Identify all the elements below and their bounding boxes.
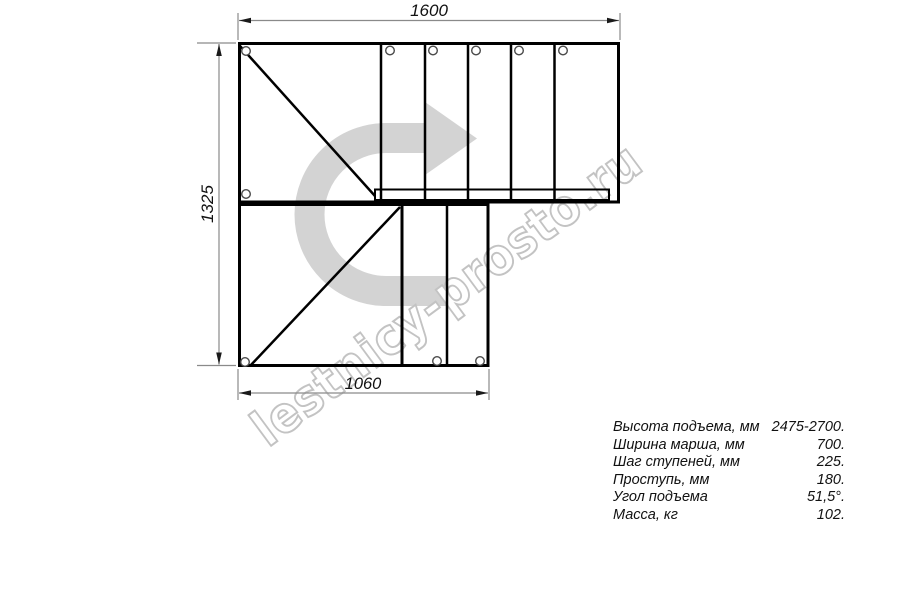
stair-plan-page: lestnicy-prosto.ru	[0, 0, 900, 600]
hole-icon	[476, 357, 485, 366]
spec-value: 51,5°.	[807, 489, 845, 507]
spec-row-climb-angle: Угол подъема 51,5°.	[613, 489, 845, 507]
spec-value: 180.	[817, 472, 845, 490]
spec-row-step-pitch: Шаг ступеней, мм 225.	[613, 454, 845, 472]
upper-flight-step-lines	[381, 44, 555, 201]
spec-row-tread: Проступь, мм 180.	[613, 472, 845, 490]
spec-value: 102.	[817, 507, 845, 525]
hole-icon	[429, 46, 438, 55]
dimension-label-bottom-width: 1060	[345, 375, 383, 393]
dimension-label-left-height: 1325	[198, 185, 217, 223]
spec-label: Масса, кг	[613, 507, 678, 525]
spec-value: 700.	[817, 437, 845, 455]
spec-label: Шаг ступеней, мм	[613, 454, 740, 472]
spec-row-rise-height: Высота подъема, мм 2475-2700.	[613, 419, 845, 437]
spec-label: Проступь, мм	[613, 472, 709, 490]
spec-label: Угол подъема	[613, 489, 708, 507]
hole-icon	[242, 190, 251, 199]
hole-icon	[386, 46, 395, 55]
hole-icon	[472, 46, 481, 55]
dimension-label-top-width: 1600	[410, 1, 448, 20]
spec-value: 2475-2700.	[772, 419, 845, 437]
hole-icon	[433, 357, 442, 366]
spec-row-flight-width: Ширина марша, мм 700.	[613, 437, 845, 455]
hole-icon	[515, 46, 524, 55]
hole-icon	[242, 47, 251, 56]
spec-label: Высота подъема, мм	[613, 419, 760, 437]
spec-row-mass: Масса, кг 102.	[613, 507, 845, 525]
spec-label: Ширина марша, мм	[613, 437, 745, 455]
spec-table: Высота подъема, мм 2475-2700. Ширина мар…	[613, 419, 845, 525]
spec-value: 225.	[817, 454, 845, 472]
hole-icon	[559, 46, 568, 55]
hole-icon	[241, 358, 250, 367]
